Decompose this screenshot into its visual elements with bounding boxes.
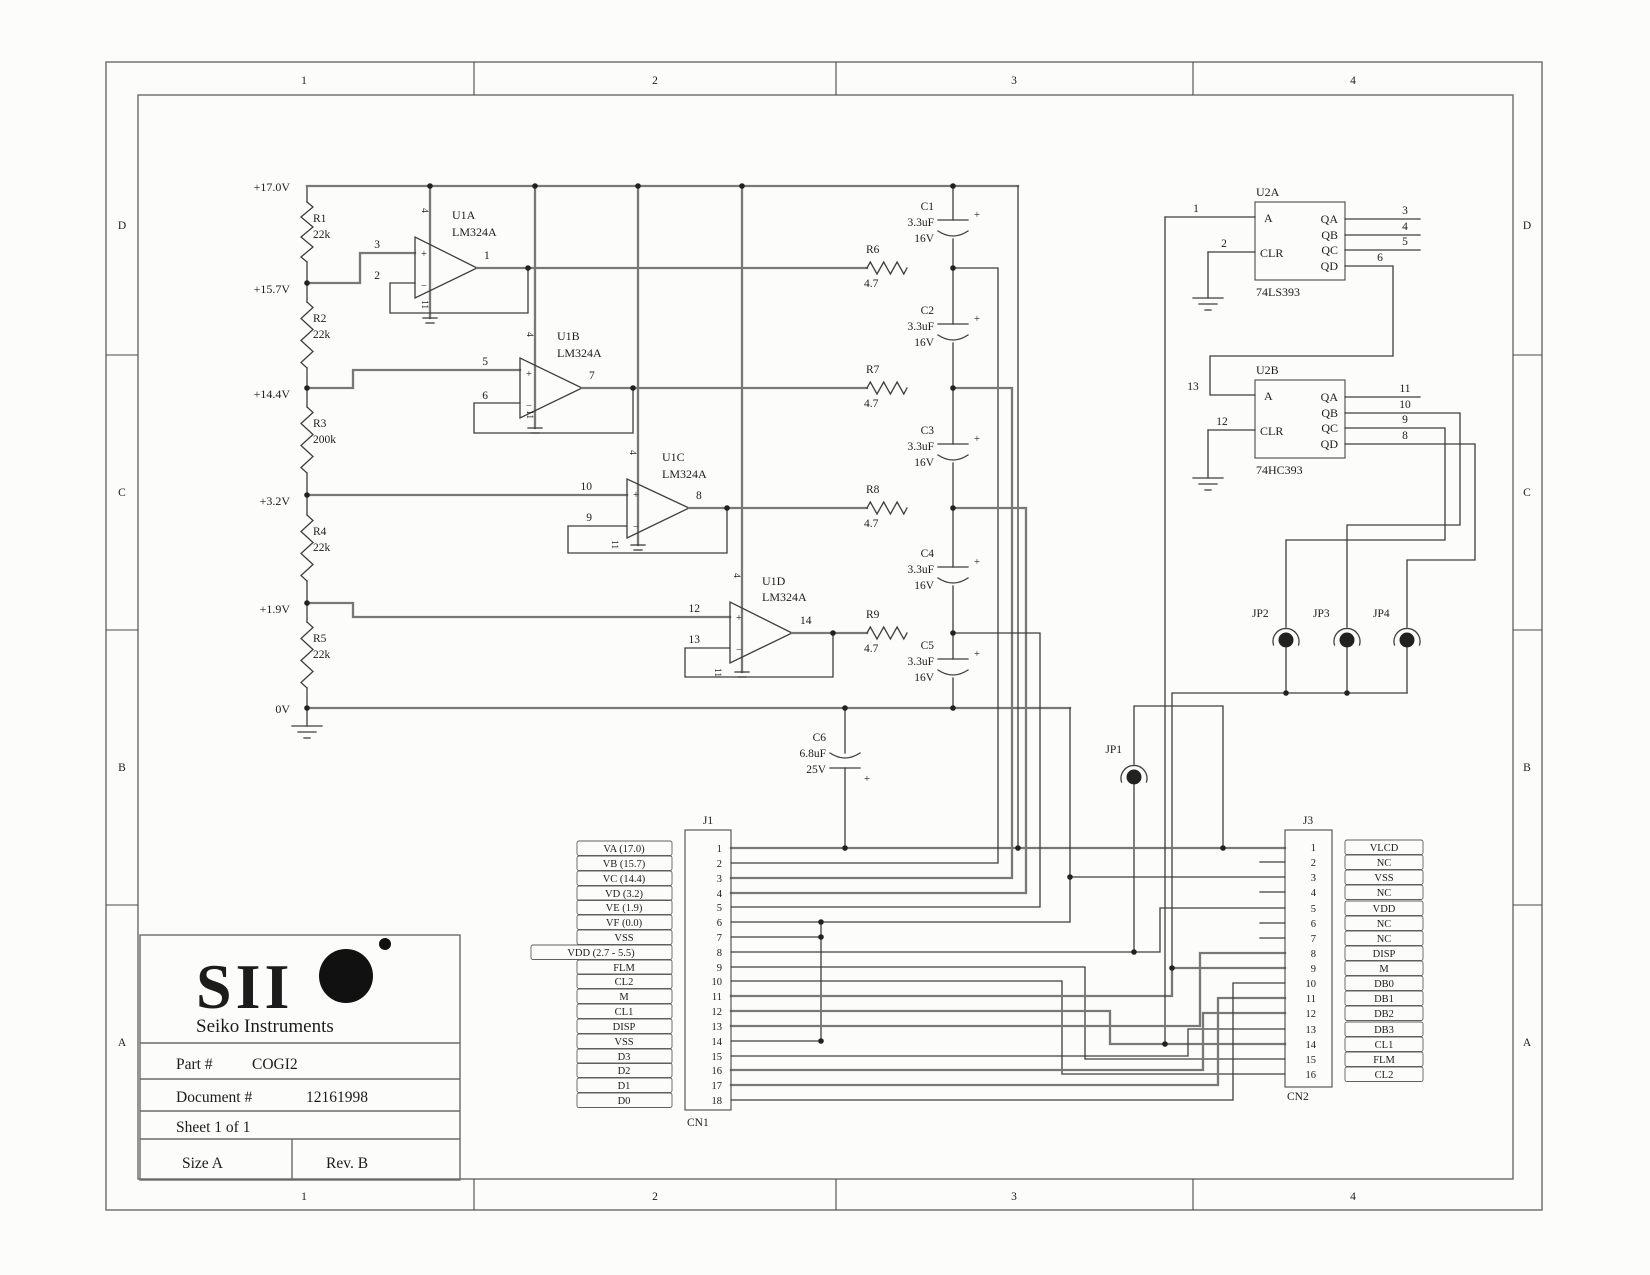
jumper-label: JP3 [1313, 608, 1330, 620]
pin-number: 3 [1402, 205, 1408, 217]
zone-col-label: 1 [301, 75, 307, 87]
resistor-ref: R9 [866, 609, 880, 621]
jumper-label: JP1 [1105, 744, 1122, 756]
zone-col-label: 2 [652, 1191, 658, 1203]
plus-sign: + [974, 649, 980, 660]
resistor-R8 [867, 502, 907, 514]
opamp-ref: U1A [452, 208, 476, 222]
signal-label: M [1379, 964, 1389, 975]
pin-number: 11 [1399, 383, 1410, 395]
rail-label: +1.9V [260, 602, 291, 616]
ground-symbol [292, 726, 322, 738]
pin-number: 2 [1311, 858, 1316, 869]
cap-ref: C3 [921, 425, 935, 437]
resistor-ref: R8 [866, 484, 880, 496]
pin-number: 15 [1306, 1055, 1317, 1066]
opamp-U1B: + − 5 6 7 U1B LM324A 4 11 [307, 329, 867, 433]
pin-number: 17 [712, 1081, 723, 1092]
signal-label: VLCD [1370, 843, 1399, 854]
resistor-value: 4.7 [864, 518, 879, 530]
resistor-R7 [867, 382, 907, 394]
resistor-ref: R4 [313, 526, 327, 538]
opamp-U1C: + − 10 9 8 U1C LM324A 4 11 [307, 450, 867, 553]
pin-number: 10 [581, 481, 593, 493]
cap-value: 3.3uF [907, 564, 934, 576]
jumper-JP2: JP2 [1252, 608, 1299, 693]
pin-number: 8 [717, 948, 722, 959]
pin-number: 14 [1306, 1040, 1317, 1051]
pin-number: 7 [589, 370, 595, 382]
pin-number: 3 [374, 239, 380, 251]
opamp-U1A: + − 3 2 1 U1A LM324A 4 11 [307, 208, 867, 313]
ground-symbol [1193, 478, 1223, 490]
capacitors: + C1 3.3uF 16V + C2 3.3uF 16V + C3 3.3uF… [799, 186, 980, 848]
pin-number: 6 [1311, 919, 1316, 930]
title-block: SII Seiko Instruments Part # COGI2 Docum… [140, 935, 460, 1180]
pin-number: 11 [712, 992, 722, 1003]
pin-number: 9 [1402, 414, 1408, 426]
jumper-JP4: JP4 [1373, 608, 1420, 693]
pin-number: 2 [1221, 238, 1227, 250]
pin-number: 9 [586, 512, 592, 524]
signal-label: NC [1377, 919, 1392, 930]
resistor-ref: R5 [313, 633, 327, 645]
port-label: QB [1321, 406, 1338, 420]
resistor-ref: R6 [866, 244, 880, 256]
signal-label: M [619, 992, 629, 1003]
pin-number: 8 [1402, 430, 1408, 442]
pin-number: 15 [712, 1052, 723, 1063]
cap-volt: 25V [806, 764, 827, 776]
resistor-value: 200k [313, 434, 336, 446]
connector-cn1: J1 CN1 1 2 3 4 5 6 7 8 9 10 11 12 13 14 … [531, 815, 731, 1129]
cap-value: 3.3uF [907, 321, 934, 333]
zone-col-label: 4 [1350, 75, 1356, 87]
signal-label: DB3 [1374, 1025, 1394, 1036]
signal-label: NC [1377, 934, 1392, 945]
pin-number: 13 [712, 1022, 723, 1033]
resistor-value: 22k [313, 542, 331, 554]
counter-U2A: U2A A CLR QA QB QC QD 74LS393 1 2 3 4 5 … [1165, 185, 1420, 395]
pin-number: 8 [696, 490, 702, 502]
resistor-value: 4.7 [864, 643, 879, 655]
resistor-ref: R1 [313, 213, 327, 225]
zone-row-label: C [118, 487, 126, 499]
port-label: QD [1321, 259, 1339, 273]
resistor-R5 [301, 622, 313, 688]
zone-row-label: C [1523, 487, 1531, 499]
schematic-page: 1 2 3 4 1 2 3 4 D C B A D C B A [0, 0, 1650, 1275]
signal-label: CL1 [615, 1007, 634, 1018]
minus-sign: − [633, 522, 639, 533]
zone-row-label: A [118, 1037, 127, 1049]
pin-number: 11 [609, 540, 619, 549]
counter-part: 74HC393 [1256, 463, 1303, 477]
sii-logo-text: SII [196, 951, 293, 1022]
cap-value: 3.3uF [907, 217, 934, 229]
pin-number: 4 [731, 573, 741, 578]
counter-ref: U2B [1256, 363, 1279, 377]
pin-number: 11 [524, 410, 534, 419]
cap-ref: C6 [813, 732, 827, 744]
pin-number: 18 [712, 1096, 723, 1107]
pin-number: 4 [1402, 221, 1408, 233]
resistor-R4 [301, 515, 313, 581]
pin-number: 13 [1187, 381, 1199, 393]
port-label: A [1264, 211, 1273, 225]
resistor-R9 [867, 627, 907, 639]
plus-sign: + [633, 490, 639, 501]
pin-number: 5 [717, 903, 722, 914]
pin-number: 16 [1306, 1070, 1317, 1081]
sheet-info: Sheet 1 of 1 [176, 1119, 250, 1136]
resistor-value: 4.7 [864, 278, 879, 290]
pin-number: 12 [1216, 416, 1228, 428]
jumper-JP1: JP1 [1105, 706, 1223, 952]
pin-number: 1 [717, 844, 722, 855]
opamp-part: LM324A [557, 346, 602, 360]
opamp-U1D: + − 12 13 14 U1D LM324A 4 11 [307, 573, 867, 677]
signal-label: DB2 [1374, 1009, 1394, 1020]
pin-number: 10 [1306, 979, 1317, 990]
opamp-ref: U1D [762, 574, 786, 588]
plus-sign: + [421, 249, 427, 260]
pin-number: 4 [717, 889, 723, 900]
port-label: QB [1321, 228, 1338, 242]
pin-number: 1 [1193, 203, 1199, 215]
connector-cn2: J3 CN2 1 2 3 4 5 6 7 8 9 10 11 12 13 14 … [1285, 815, 1423, 1103]
rail-label: +15.7V [254, 282, 291, 296]
pin-number: 11 [419, 300, 429, 309]
signal-label: DB1 [1374, 994, 1394, 1005]
signal-label: D3 [618, 1052, 631, 1063]
pin-number: 10 [712, 977, 723, 988]
signal-label: D0 [618, 1096, 631, 1107]
pin-number: 6 [1377, 252, 1383, 264]
pin-number: 13 [1306, 1025, 1317, 1036]
signal-label: NC [1377, 858, 1392, 869]
signal-label: VB (15.7) [603, 859, 646, 870]
signal-label: VDD (2.7 - 5.5) [567, 948, 635, 959]
pin-number: 5 [1311, 904, 1316, 915]
plus-sign: + [864, 774, 870, 785]
signal-label: NC [1377, 888, 1392, 899]
counter-ref: U2A [1256, 185, 1280, 199]
zone-col-label: 3 [1011, 1191, 1017, 1203]
resistor-value: 22k [313, 649, 331, 661]
pin-number: 14 [712, 1037, 723, 1048]
zone-row-label: B [1523, 762, 1531, 774]
sii-logo-dot [379, 938, 391, 950]
signal-label: VSS [1374, 873, 1393, 884]
pin-number: 3 [717, 874, 722, 885]
signal-label: FLM [613, 963, 635, 974]
zone-col-label: 2 [652, 75, 658, 87]
signal-routes [731, 186, 1285, 1100]
signal-label: VA (17.0) [603, 844, 645, 855]
pin-number: 12 [1306, 1009, 1317, 1020]
zone-col-label: 4 [1350, 1191, 1356, 1203]
plus-sign: + [736, 613, 742, 624]
document-label: Document # [176, 1089, 252, 1106]
opamp-part: LM324A [452, 225, 497, 239]
signal-label: CL2 [1375, 1070, 1394, 1081]
pin-number: 14 [800, 615, 812, 627]
resistor-R2 [301, 302, 313, 368]
signal-label: VD (3.2) [605, 889, 643, 900]
port-label: CLR [1260, 246, 1283, 260]
resistor-value: 22k [313, 229, 331, 241]
zone-col-label: 1 [301, 1191, 307, 1203]
signal-label: D1 [618, 1081, 631, 1092]
resistor-R3 [301, 407, 313, 473]
port-label: QA [1321, 390, 1339, 404]
pin-number: 11 [1306, 994, 1316, 1005]
plus-sign: + [974, 314, 980, 325]
resistor-ref: R7 [866, 364, 880, 376]
jumper-label: JP2 [1252, 608, 1269, 620]
pin-number: 5 [1402, 236, 1408, 248]
pin-number: 7 [1311, 934, 1316, 945]
pin-number: 4 [524, 332, 534, 337]
signal-label: VF (0.0) [606, 918, 643, 929]
resistor-R6 [867, 262, 907, 274]
signal-label: VE (1.9) [606, 903, 643, 914]
connector-name: CN1 [687, 1117, 709, 1129]
rev-info: Rev. B [326, 1155, 368, 1172]
zone-col-label: 3 [1011, 75, 1017, 87]
cap-value: 3.3uF [907, 441, 934, 453]
pin-number: 13 [689, 634, 701, 646]
port-label: QC [1321, 243, 1338, 257]
plus-sign: + [974, 557, 980, 568]
pin-number: 5 [482, 356, 488, 368]
signal-label: VSS [614, 1037, 633, 1048]
port-label: QA [1321, 212, 1339, 226]
resistor-ref: R3 [313, 418, 327, 430]
rail-label: +14.4V [254, 387, 291, 401]
pin-number: 1 [484, 250, 490, 262]
signal-label: FLM [1373, 1055, 1395, 1066]
signal-label: VDD [1373, 904, 1396, 915]
cap-ref: C5 [921, 640, 935, 652]
zone-row-label: B [118, 762, 126, 774]
rail-label: +17.0V [254, 180, 291, 194]
part-label: Part # [176, 1056, 213, 1073]
signal-label: VSS [614, 933, 633, 944]
pin-number: 8 [1311, 949, 1316, 960]
opamp-ref: U1C [662, 450, 685, 464]
plus-sign: + [526, 369, 532, 380]
pin-number: 9 [717, 963, 722, 974]
cap-volt: 16V [914, 672, 935, 684]
pin-number: 6 [482, 390, 488, 402]
connector-designator: J3 [1303, 815, 1313, 827]
resistor-ref: R2 [313, 313, 327, 325]
cap-volt: 16V [914, 580, 935, 592]
resistor-value: 22k [313, 329, 331, 341]
power-rails [307, 186, 1070, 708]
connector-designator: J1 [703, 815, 713, 827]
pin-number: 12 [712, 1007, 723, 1018]
counter-U2B: U2B A CLR QA QB QC QD 74HC393 13 12 11 1… [1187, 363, 1475, 627]
pin-number: 4 [1311, 888, 1317, 899]
jumper-JP3: JP3 [1313, 608, 1360, 693]
voltage-ladder: +17.0V +15.7V +14.4V +3.2V +1.9V 0V R1 2… [254, 180, 337, 738]
cap-ref: C2 [921, 305, 935, 317]
port-label: CLR [1260, 424, 1283, 438]
port-label: QD [1321, 437, 1339, 451]
pin-number: 9 [1311, 964, 1316, 975]
pin-number: 4 [627, 450, 637, 455]
cap-volt: 16V [914, 457, 935, 469]
opamp-part: LM324A [762, 590, 807, 604]
zone-row-label: D [118, 220, 126, 232]
connector-name: CN2 [1287, 1091, 1309, 1103]
pin-number: 1 [1311, 843, 1316, 854]
part-number: COGI2 [252, 1056, 298, 1073]
company-name: Seiko Instruments [196, 1016, 334, 1037]
minus-sign: − [736, 645, 742, 656]
resistor-value: 4.7 [864, 398, 879, 410]
ground-symbol [1193, 298, 1223, 310]
pin-number: 3 [1311, 873, 1316, 884]
pin-number: 11 [712, 668, 722, 677]
signal-label: D2 [618, 1066, 631, 1077]
cap-ref: C4 [921, 548, 935, 560]
minus-sign: − [421, 281, 427, 292]
jumper-label: JP4 [1373, 608, 1390, 620]
port-label: QC [1321, 421, 1338, 435]
pin-number: 2 [717, 859, 722, 870]
counter-part: 74LS393 [1256, 285, 1300, 299]
signal-label: VC (14.4) [603, 874, 646, 885]
pin-number: 7 [717, 933, 722, 944]
port-label: A [1264, 389, 1273, 403]
cap-volt: 16V [914, 233, 935, 245]
cap-ref: C1 [921, 201, 935, 213]
signal-label: DISP [1373, 949, 1396, 960]
plus-sign: + [974, 434, 980, 445]
signal-label: DB0 [1374, 979, 1394, 990]
opamp-part: LM324A [662, 467, 707, 481]
size-info: Size A [182, 1155, 224, 1172]
signal-label: DISP [613, 1022, 636, 1033]
signal-label: CL2 [615, 977, 634, 988]
sii-logo-circle [319, 949, 373, 1003]
zone-row-label: A [1523, 1037, 1532, 1049]
series-resistors: R6 4.7 R7 4.7 R8 4.7 R9 4.7 [864, 244, 907, 655]
rail-label: 0V [275, 702, 290, 716]
document-number: 12161998 [306, 1089, 368, 1106]
pin-number: 2 [374, 270, 380, 282]
pin-number: 16 [712, 1066, 723, 1077]
cap-value: 3.3uF [907, 656, 934, 668]
zone-row-label: D [1523, 220, 1531, 232]
pin-number: 4 [419, 208, 429, 213]
resistor-R1 [301, 202, 313, 262]
plus-sign: + [974, 210, 980, 221]
rail-label: +3.2V [260, 494, 291, 508]
opamp-ref: U1B [557, 329, 580, 343]
pin-number: 12 [689, 603, 701, 615]
pin-number: 10 [1399, 399, 1411, 411]
pin-number: 6 [717, 918, 722, 929]
cap-volt: 16V [914, 337, 935, 349]
cap-value: 6.8uF [799, 748, 826, 760]
signal-label: CL1 [1375, 1040, 1394, 1051]
